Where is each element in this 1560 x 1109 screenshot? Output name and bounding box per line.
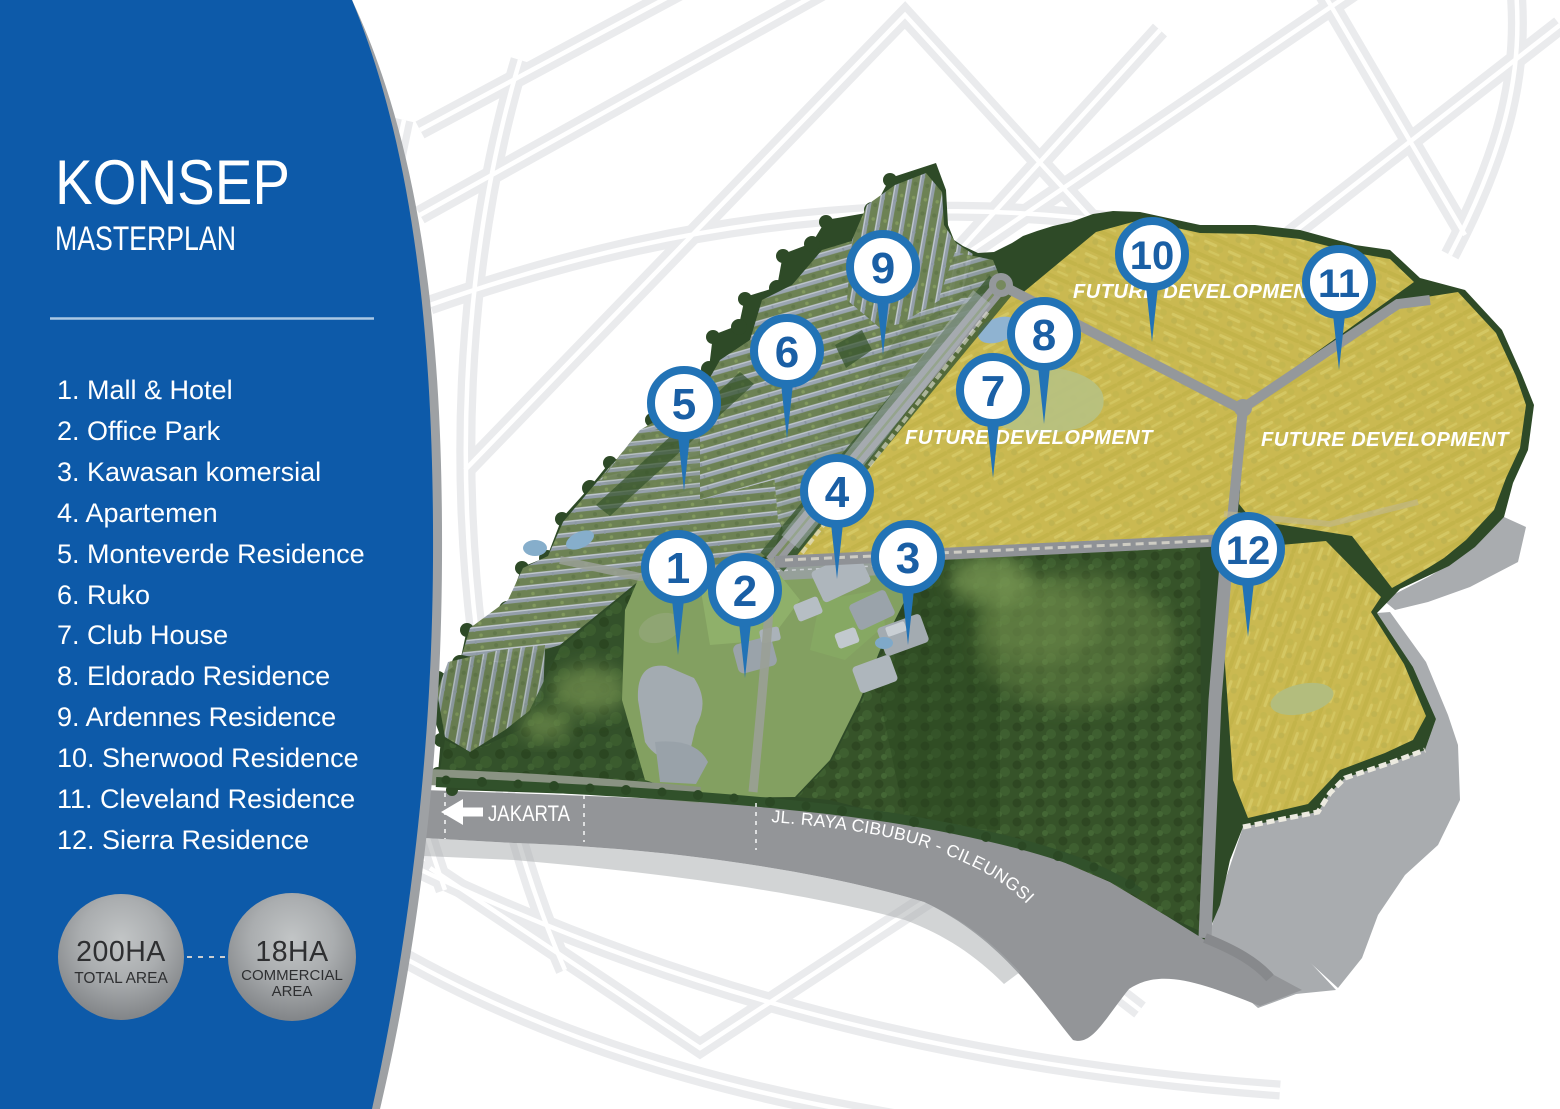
svg-text:3. Kawasan komersial: 3. Kawasan komersial xyxy=(57,457,321,487)
svg-text:10. Sherwood Residence: 10. Sherwood Residence xyxy=(57,743,359,773)
svg-text:AREA: AREA xyxy=(272,983,313,1000)
svg-text:6: 6 xyxy=(775,328,799,377)
svg-text:MASTERPLAN: MASTERPLAN xyxy=(55,220,236,258)
svg-text:9. Ardennes Residence: 9. Ardennes Residence xyxy=(57,702,336,732)
svg-text:12. Sierra Residence: 12. Sierra Residence xyxy=(57,825,309,855)
svg-text:200HA: 200HA xyxy=(76,936,166,968)
svg-text:FUTURE DEVELOPMENT: FUTURE DEVELOPMENT xyxy=(1073,281,1322,303)
svg-text:18HA: 18HA xyxy=(255,936,328,968)
svg-text:2: 2 xyxy=(733,567,757,616)
svg-text:7. Club House: 7. Club House xyxy=(57,620,228,650)
svg-text:FUTURE DEVELOPMENT: FUTURE DEVELOPMENT xyxy=(1261,429,1510,451)
svg-text:10: 10 xyxy=(1130,234,1175,278)
svg-text:1. Mall & Hotel: 1. Mall & Hotel xyxy=(57,375,233,405)
svg-text:KONSEP: KONSEP xyxy=(55,148,290,218)
svg-text:11: 11 xyxy=(1318,262,1360,306)
svg-text:7: 7 xyxy=(981,367,1005,416)
svg-text:COMMERCIAL: COMMERCIAL xyxy=(241,967,343,984)
svg-text:12: 12 xyxy=(1226,529,1271,573)
svg-text:4. Apartemen: 4. Apartemen xyxy=(57,498,218,528)
svg-text:11. Cleveland Residence: 11. Cleveland Residence xyxy=(57,784,355,814)
svg-text:6. Ruko: 6. Ruko xyxy=(57,580,150,610)
svg-text:JAKARTA: JAKARTA xyxy=(488,801,570,826)
svg-text:9: 9 xyxy=(871,244,895,293)
svg-text:8. Eldorado Residence: 8. Eldorado Residence xyxy=(57,661,330,691)
svg-text:3: 3 xyxy=(896,534,920,583)
svg-text:5: 5 xyxy=(672,380,696,429)
svg-text:FUTURE DEVELOPMENT: FUTURE DEVELOPMENT xyxy=(905,427,1154,449)
svg-text:TOTAL AREA: TOTAL AREA xyxy=(74,970,168,987)
svg-text:2. Office Park: 2. Office Park xyxy=(57,416,221,446)
svg-text:1: 1 xyxy=(666,544,690,593)
svg-text:5. Monteverde Residence: 5. Monteverde Residence xyxy=(57,539,365,569)
svg-text:4: 4 xyxy=(825,468,850,517)
svg-text:8: 8 xyxy=(1032,311,1056,360)
